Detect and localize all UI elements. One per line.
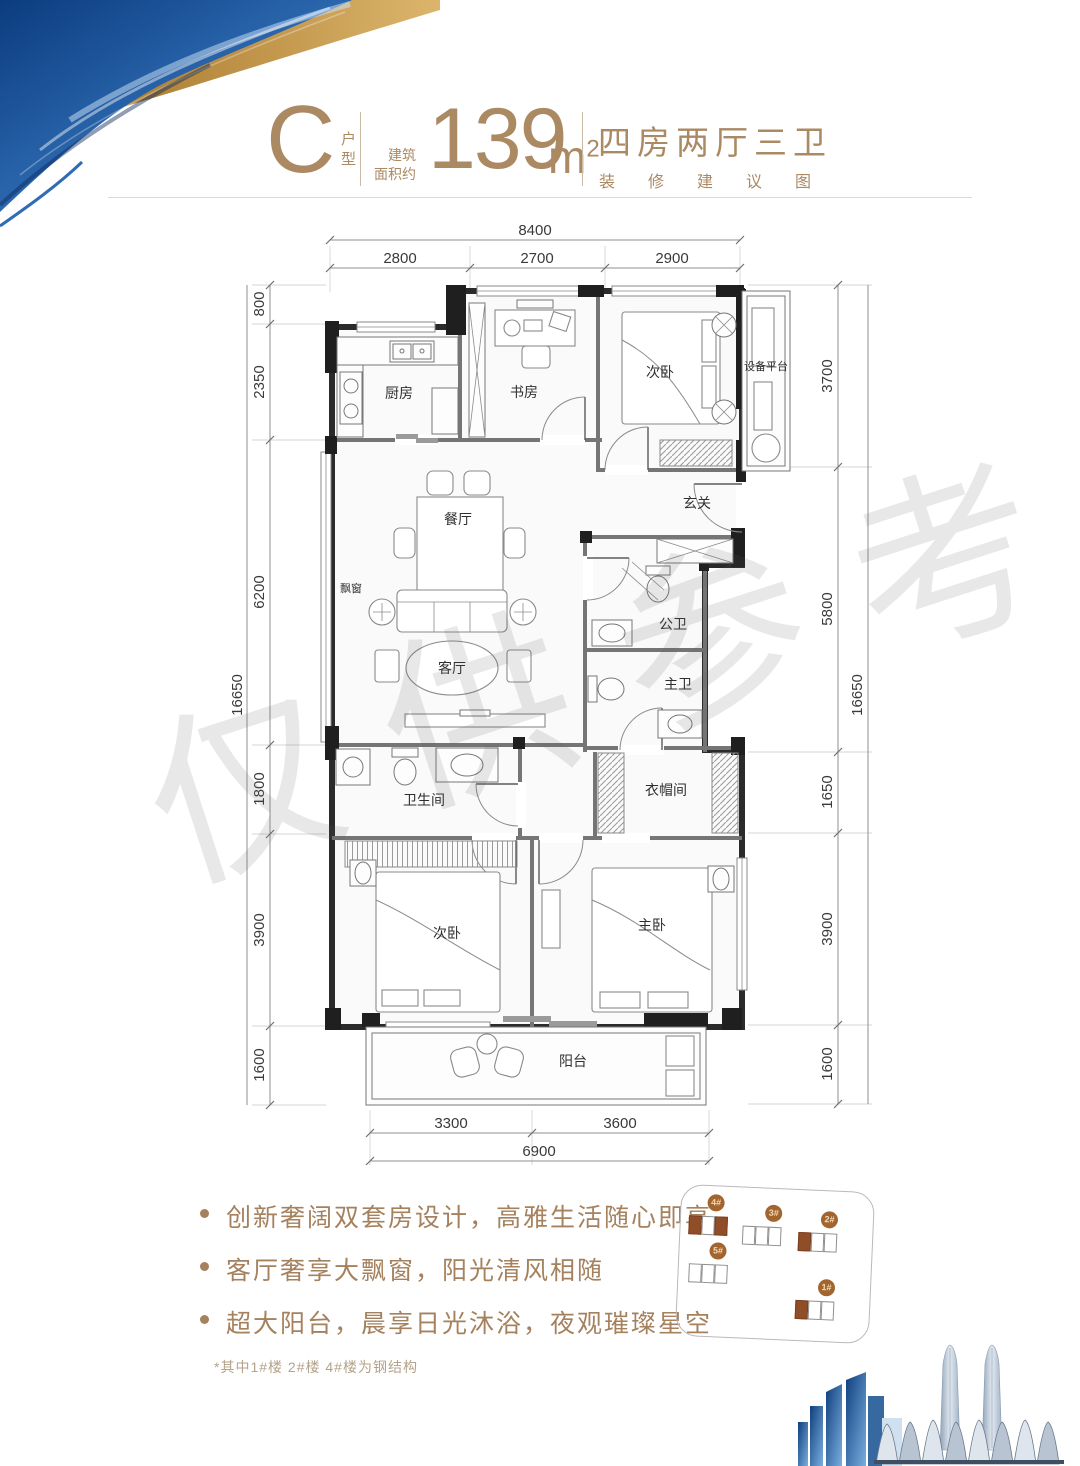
dim-label: 1800 bbox=[251, 772, 268, 805]
dim-label: 2350 bbox=[251, 365, 268, 398]
lotus-building bbox=[874, 1420, 1064, 1464]
window bbox=[357, 322, 435, 332]
unit-cell bbox=[811, 1233, 825, 1253]
kitchen-slider bbox=[396, 434, 418, 439]
unit-cell bbox=[714, 1216, 728, 1236]
unit-cell bbox=[714, 1264, 728, 1284]
dim-label: 6900 bbox=[522, 1143, 555, 1160]
building-3 bbox=[742, 1226, 782, 1247]
dim-label: 5800 bbox=[819, 592, 836, 625]
dim-label: 1600 bbox=[819, 1047, 836, 1080]
wave-decoration bbox=[0, 0, 440, 235]
dim-label: 1600 bbox=[251, 1048, 268, 1081]
building-2 bbox=[798, 1232, 838, 1253]
dim-label: 2700 bbox=[520, 250, 553, 267]
dim-label: 3700 bbox=[819, 359, 836, 392]
area-unit: m2 bbox=[548, 134, 600, 180]
balcony-slider bbox=[549, 1021, 597, 1027]
unit-type-letter: C bbox=[266, 92, 335, 188]
bay-window bbox=[321, 452, 331, 742]
room-label-entry: 玄关 bbox=[683, 495, 711, 511]
window bbox=[737, 858, 747, 990]
dim-label: 6200 bbox=[251, 575, 268, 608]
building-5 bbox=[688, 1263, 728, 1284]
building-badge: 1# bbox=[818, 1279, 836, 1297]
site-plan: 4# 3# 2# 5# 1# bbox=[675, 1184, 875, 1344]
room-label-cloakroom: 衣帽间 bbox=[645, 782, 687, 798]
floorplan-drawing: 8400 2800 2700 2900 16650 800 2350 6200 … bbox=[230, 225, 930, 1165]
building-badge: 3# bbox=[765, 1205, 783, 1223]
building-badge: 4# bbox=[707, 1194, 725, 1212]
room-label-balcony: 阳台 bbox=[559, 1053, 587, 1069]
building-1 bbox=[795, 1300, 835, 1321]
unit-cell bbox=[701, 1216, 715, 1236]
balcony-furniture bbox=[366, 1027, 706, 1105]
unit-cell bbox=[798, 1232, 812, 1252]
area-prefix: 建筑 面积约 bbox=[372, 146, 416, 184]
unit-cell bbox=[742, 1226, 756, 1246]
kitchen-slider bbox=[416, 438, 438, 443]
entry-closet bbox=[657, 539, 733, 563]
unit-cell bbox=[824, 1233, 838, 1253]
feature-item: 超大阳台，晨享日光沐浴，夜观璀璨星空 bbox=[200, 1304, 712, 1340]
unit-type-char2: 型 bbox=[341, 150, 356, 170]
unit-cell bbox=[701, 1264, 715, 1284]
room-label-master-bedroom: 主卧 bbox=[638, 917, 666, 933]
header-rule bbox=[108, 197, 972, 198]
dim-label: 3300 bbox=[434, 1115, 467, 1132]
equipment-platform bbox=[742, 291, 790, 471]
room-label-bedroom2: 次卧 bbox=[433, 925, 461, 941]
layout-subtitle: 装修建议图 bbox=[599, 168, 844, 192]
unit-cell bbox=[755, 1226, 769, 1246]
room-label-study: 书房 bbox=[510, 384, 538, 400]
building-badge: 2# bbox=[821, 1211, 839, 1229]
area-value: 139 bbox=[428, 96, 566, 182]
feature-item: 客厅奢享大飘窗，阳光清风相随 bbox=[200, 1251, 712, 1287]
unit-cell bbox=[795, 1300, 809, 1320]
balcony-slider bbox=[503, 1016, 551, 1022]
window bbox=[612, 286, 718, 296]
twin-towers bbox=[940, 1345, 1002, 1450]
header-divider-1 bbox=[360, 112, 361, 186]
feature-list: 创新奢阔双套房设计，高雅生活随心即享 客厅奢享大飘窗，阳光清风相随 超大阳台，晨… bbox=[200, 1198, 712, 1377]
footnote: *其中1#楼 2#楼 4#楼为钢结构 bbox=[214, 1357, 712, 1377]
room-label-dining: 餐厅 bbox=[444, 511, 472, 527]
room-label-master-bath: 主卫 bbox=[664, 676, 692, 692]
dim-label: 8400 bbox=[518, 225, 551, 239]
room-label-bay-window: 飘窗 bbox=[340, 581, 362, 595]
area-prefix-line2: 面积约 bbox=[372, 165, 416, 184]
area-unit-m: m bbox=[548, 131, 586, 183]
room-label-bathroom: 卫生间 bbox=[403, 792, 445, 808]
dim-label: 16650 bbox=[849, 674, 866, 716]
city-skyline bbox=[790, 1330, 1080, 1466]
dim-label: 2800 bbox=[383, 250, 416, 267]
unit-cell bbox=[821, 1301, 835, 1321]
dim-label: 2900 bbox=[655, 250, 688, 267]
window bbox=[477, 286, 581, 296]
unit-cell bbox=[768, 1227, 782, 1247]
room-label-living: 客厅 bbox=[438, 660, 466, 676]
building-4 bbox=[688, 1215, 728, 1236]
layout-title: 四房两厅三卫 bbox=[598, 116, 828, 164]
unit-cell bbox=[808, 1300, 822, 1320]
unit-cell bbox=[688, 1263, 702, 1283]
building-badge: 5# bbox=[709, 1242, 727, 1260]
room-label-equipment: 设备平台 bbox=[744, 359, 788, 373]
dim-label: 3600 bbox=[603, 1115, 636, 1132]
dim-label: 800 bbox=[251, 291, 268, 316]
room-label-bedroom-top: 次卧 bbox=[646, 364, 674, 380]
dim-label: 3900 bbox=[251, 913, 268, 946]
dim-label: 16650 bbox=[230, 674, 246, 716]
room-label-kitchen: 厨房 bbox=[385, 385, 413, 401]
header-divider-2 bbox=[582, 112, 583, 186]
room-label-guest-bath: 公卫 bbox=[659, 616, 687, 632]
unit-type-label: 户 型 bbox=[341, 130, 356, 170]
floorplan-poster: C 户 型 建筑 面积约 139 m2 四房两厅三卫 装修建议图 8400 bbox=[0, 0, 1080, 1466]
feature-item: 创新奢阔双套房设计，高雅生活随心即享 bbox=[200, 1198, 712, 1234]
dim-label: 3900 bbox=[819, 912, 836, 945]
area-prefix-line1: 建筑 bbox=[372, 146, 416, 165]
unit-type-char1: 户 bbox=[341, 130, 356, 150]
unit-cell bbox=[688, 1215, 702, 1235]
dim-label: 1650 bbox=[819, 775, 836, 808]
